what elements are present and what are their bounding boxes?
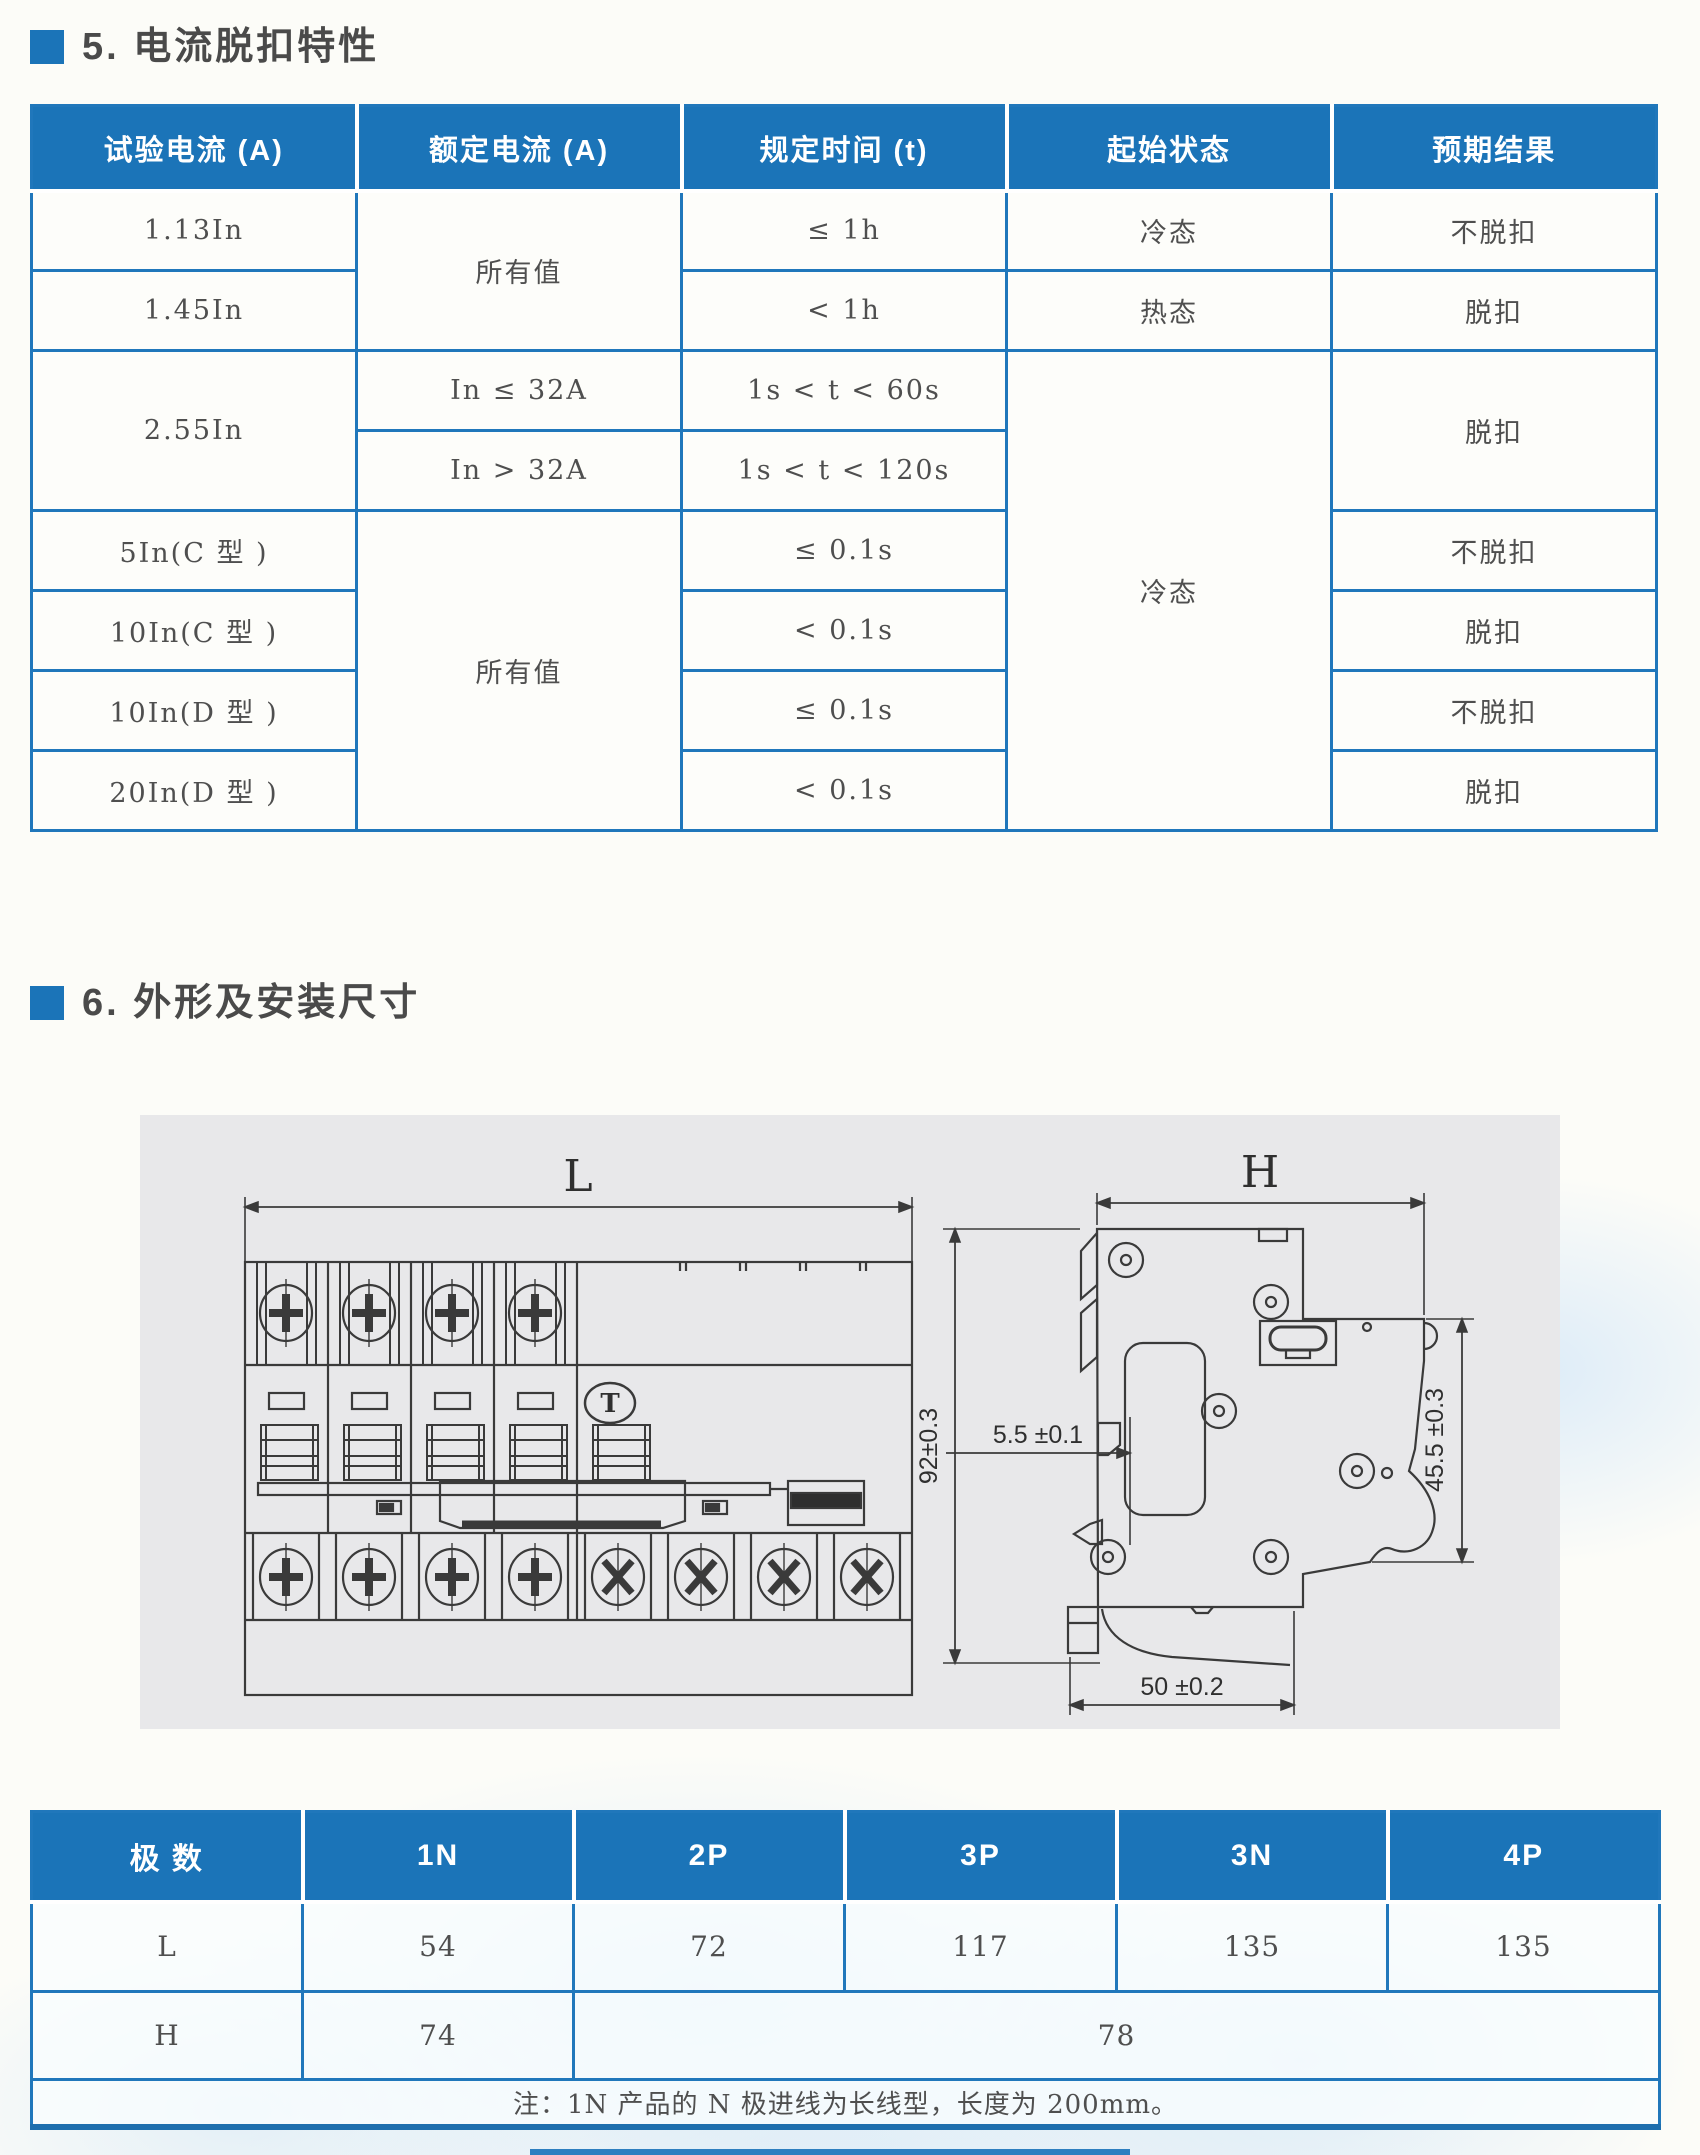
screw-icon [509, 1279, 561, 1347]
table-row: 10In(C 型 ) < 0.1s 脱扣 [32, 591, 1657, 671]
dim-l-3p: 117 [845, 1902, 1117, 1992]
trip-r3-time: 1s < t < 60s [682, 351, 1007, 431]
table-row: L 54 72 117 135 135 [32, 1902, 1660, 1992]
dim-l-4p: 135 [1388, 1902, 1660, 1992]
dim-header-poles: 极 数 [32, 1812, 303, 1902]
screw-icon [343, 1543, 395, 1611]
installation-dimensions-drawing: T [140, 1115, 1560, 1729]
din-clip-latch [1102, 1609, 1290, 1665]
table-row: 20In(D 型 ) < 0.1s 脱扣 [32, 751, 1657, 831]
screw-icon [260, 1279, 312, 1347]
section6-header: 6. 外形及安装尺寸 [30, 984, 420, 1022]
trip-header-initial-state: 起始状态 [1007, 106, 1332, 191]
dimension-drawing-panel: T [140, 1115, 1560, 1729]
trip-r6-result: 脱扣 [1332, 591, 1657, 671]
table-row: 1.13In 所有值 ≤ 1h 冷态 不脱扣 [32, 191, 1657, 271]
trip-r1-time: ≤ 1h [682, 191, 1007, 271]
trip-r5-result: 不脱扣 [1332, 511, 1657, 591]
table-row: 2.55In In ≤ 32A 1s < t < 60s 冷态 脱扣 [32, 351, 1657, 431]
trip-r3-rated-current: In ≤ 32A [357, 351, 682, 431]
pole-dimensions-table: 极 数 1N 2P 3P 3N 4P L 54 72 117 135 135 H… [30, 1810, 1661, 2130]
table-row: 5In(C 型 ) 所有值 ≤ 0.1s 不脱扣 [32, 511, 1657, 591]
trip-r2-time: < 1h [682, 271, 1007, 351]
trip-characteristics-table: 试验电流 (A) 额定电流 (A) 规定时间 (t) 起始状态 预期结果 1.1… [30, 104, 1658, 832]
trip-r7-test-current: 10In(D 型 ) [32, 671, 357, 751]
front-view-drawing: T [245, 1151, 912, 1695]
screw-icon [592, 1543, 644, 1611]
trip-r4-time: 1s < t < 120s [682, 431, 1007, 511]
dim-h-1n: 74 [303, 1992, 574, 2080]
dim-header-4p: 4P [1388, 1812, 1660, 1902]
side-recess [1125, 1343, 1205, 1515]
table-row: 注：1N 产品的 N 极进线为长线型，长度为 200mm。 [32, 2080, 1660, 2127]
dim-header-1n: 1N [303, 1812, 574, 1902]
table-row: 1.45In < 1h 热态 脱扣 [32, 271, 1657, 351]
trip-r3-initial-state: 冷态 [1007, 351, 1332, 831]
trip-header-time: 规定时间 (t) [682, 106, 1007, 191]
dimension-L: L [245, 1151, 912, 1262]
trip-r5-test-current: 5In(C 型 ) [32, 511, 357, 591]
trip-header-rated-current: 额定电流 (A) [357, 106, 682, 191]
dim-92-label: 92±0.3 [915, 1408, 943, 1484]
screw-icon [426, 1543, 478, 1611]
trip-r7-time: ≤ 0.1s [682, 671, 1007, 751]
trip-r1-test-current: 1.13In [32, 191, 357, 271]
trip-r1-initial-state: 冷态 [1007, 191, 1332, 271]
test-button-label: T [600, 1389, 620, 1419]
trip-header-result: 预期结果 [1332, 106, 1657, 191]
trip-r5-time: ≤ 0.1s [682, 511, 1007, 591]
screw-icon [509, 1543, 561, 1611]
table-row: 10In(D 型 ) ≤ 0.1s 不脱扣 [32, 671, 1657, 751]
section-bullet-icon [30, 986, 64, 1020]
dim-h-label: H [32, 1992, 303, 2080]
trip-r2-initial-state: 热态 [1007, 271, 1332, 351]
trip-r7-result: 不脱扣 [1332, 671, 1657, 751]
dim-l-3n: 135 [1117, 1902, 1388, 1992]
trip-r8-time: < 0.1s [682, 751, 1007, 831]
dim-table-note: 注：1N 产品的 N 极进线为长线型，长度为 200mm。 [32, 2080, 1660, 2127]
trip-r6-time: < 0.1s [682, 591, 1007, 671]
trip-r3-test-current: 2.55In [32, 351, 357, 511]
screw-icon [260, 1543, 312, 1611]
trip-r2-result: 脱扣 [1332, 271, 1657, 351]
dim-l-1n: 54 [303, 1902, 574, 1992]
screw-icon [675, 1543, 727, 1611]
screw-icon [343, 1279, 395, 1347]
dim-l-label: L [32, 1902, 303, 1992]
datasheet-page: 5. 电流脱扣特性 试验电流 (A) 额定电流 (A) 规定时间 (t) 起始状… [0, 0, 1700, 2155]
dim-45-5-label: 45.5 ±0.3 [1421, 1388, 1449, 1492]
trip-r4-rated-current: In > 32A [357, 431, 682, 511]
dim-header-3p: 3P [845, 1812, 1117, 1902]
trip-r8-result: 脱扣 [1332, 751, 1657, 831]
trip-header-test-current: 试验电流 (A) [32, 106, 357, 191]
screw-icon [841, 1543, 893, 1611]
table-row: H 74 78 [32, 1992, 1660, 2080]
trip-r1-result: 不脱扣 [1332, 191, 1657, 271]
section5-header: 5. 电流脱扣特性 [30, 28, 379, 66]
footer-accent-line [530, 2149, 1130, 2155]
dim-l-2p: 72 [574, 1902, 845, 1992]
dim-5-5-label: 5.5 ±0.1 [993, 1421, 1083, 1449]
trip-r8-test-current: 20In(D 型 ) [32, 751, 357, 831]
dim-h-others: 78 [574, 1992, 1660, 2080]
toggle-window [1260, 1321, 1336, 1365]
dim-H-label: H [1241, 1147, 1279, 1198]
test-button-icon: T [585, 1383, 635, 1423]
side-view-drawing: H 92±0.3 5.5 ±0.1 [915, 1147, 1474, 1715]
dim-50-label: 50 ±0.2 [1140, 1673, 1223, 1701]
screw-icon [426, 1279, 478, 1347]
trip-r2-test-current: 1.45In [32, 271, 357, 351]
section5-title: 5. 电流脱扣特性 [82, 28, 379, 66]
trip-r1-rated-current: 所有值 [357, 191, 682, 351]
handle-tie-bar [258, 1481, 864, 1528]
trip-r5-rated-current: 所有值 [357, 511, 682, 831]
dim-L-label: L [563, 1151, 592, 1202]
dim-header-2p: 2P [574, 1812, 845, 1902]
section6-title: 6. 外形及安装尺寸 [82, 984, 420, 1022]
trip-r6-test-current: 10In(C 型 ) [32, 591, 357, 671]
section-bullet-icon [30, 30, 64, 64]
screw-icon [758, 1543, 810, 1611]
trip-r3-result: 脱扣 [1332, 351, 1657, 511]
rivet-icons [1091, 1243, 1392, 1574]
dim-header-3n: 3N [1117, 1812, 1388, 1902]
